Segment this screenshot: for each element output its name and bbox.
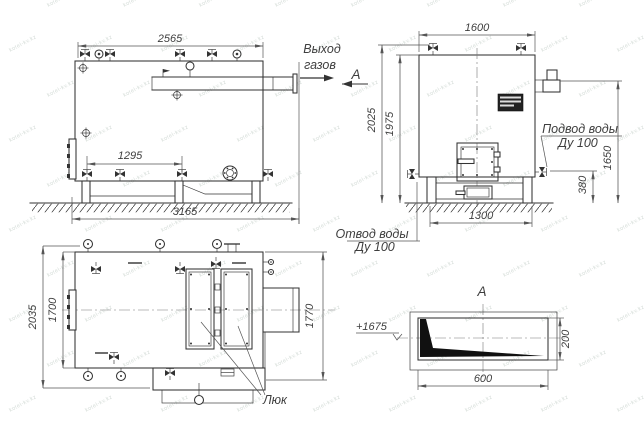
chimney-stub (535, 70, 560, 92)
gas-outlet-annotation: Выход газов (300, 42, 341, 81)
svg-text:2565: 2565 (157, 33, 183, 45)
furnace-door (457, 143, 500, 181)
svg-text:2035: 2035 (27, 304, 39, 330)
section-arrow-a: А (342, 67, 368, 87)
water-inlet-label-1: Подвод воды (542, 122, 618, 136)
top-view: 2035 1700 1770 Люк (27, 240, 335, 408)
svg-text:1300: 1300 (469, 210, 494, 222)
flue-duct (152, 62, 297, 93)
ash-door (456, 186, 492, 199)
drawing-sheet: kotel-kv.kzkotel-kv.kzkotel-kv.kzkotel-k… (0, 0, 644, 430)
dim-2035: 2035 (27, 246, 150, 388)
dim-380: 380 (550, 171, 597, 203)
gas-outlet-label-1: Выход (303, 42, 341, 56)
top-valves (80, 50, 241, 62)
outlet-duct-top (263, 288, 299, 368)
water-outlet-label-2: Ду 100 (353, 240, 395, 254)
elevation-mark: +1675 (356, 321, 402, 340)
hatch-label: Люк (262, 393, 288, 407)
svg-text:1770: 1770 (304, 303, 316, 328)
dim-1975: 1975 (384, 55, 419, 203)
furnace-extension (153, 368, 265, 405)
svg-text:1600: 1600 (465, 22, 490, 34)
dim-600: 600 (418, 370, 548, 390)
nameplate (498, 94, 523, 111)
gas-outlet-label-2: газов (304, 58, 336, 72)
svg-text:200: 200 (560, 329, 572, 349)
section-title: А (476, 284, 486, 299)
side-view: 2565 1295 3165 Выход газов (30, 33, 368, 224)
water-outlet-annotation: Отвод воды Ду 100 (335, 182, 420, 254)
svg-text:3165: 3165 (173, 206, 198, 218)
dim-200: 200 (548, 318, 572, 360)
hatch-1 (186, 269, 214, 349)
drain-valves (82, 170, 273, 182)
ground-line (30, 203, 292, 212)
svg-text:600: 600 (474, 373, 493, 385)
burner-flange (67, 139, 76, 179)
inspection-crosses (78, 63, 183, 139)
water-outlet-valve (408, 169, 420, 179)
water-inlet-label-2: Ду 100 (556, 136, 598, 150)
door-handle (458, 159, 474, 164)
front-view: 1600 2025 1975 1650 380 (335, 22, 622, 254)
support-legs (82, 181, 260, 203)
dim-1770: 1770 (265, 252, 327, 380)
elevation-label: +1675 (356, 321, 388, 333)
section-mark-label: А (350, 67, 360, 82)
svg-text:1975: 1975 (384, 111, 396, 136)
water-inlet-valve (535, 167, 547, 177)
dim-1295: 1295 (87, 150, 182, 172)
water-outlet-label-1: Отвод воды (335, 227, 408, 241)
boiler-drawing: 2565 1295 3165 Выход газов (0, 0, 644, 430)
svg-text:2025: 2025 (366, 107, 378, 133)
round-flange (223, 166, 237, 180)
svg-text:1295: 1295 (118, 150, 143, 162)
svg-text:1650: 1650 (602, 145, 614, 170)
hatch-2 (221, 269, 252, 349)
dim-2025: 2025 (366, 45, 430, 203)
svg-text:1700: 1700 (47, 297, 59, 322)
section-a-view: А +1675 200 600 (356, 284, 572, 390)
svg-text:380: 380 (577, 175, 589, 194)
